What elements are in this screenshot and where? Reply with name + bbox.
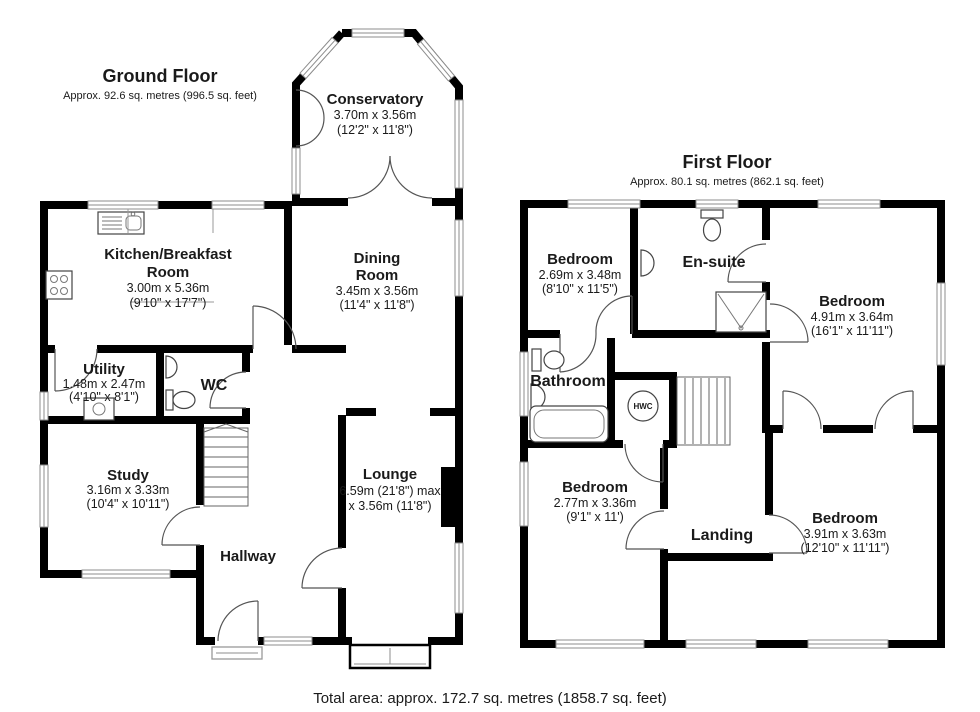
study-window-side: [40, 465, 48, 527]
kitchen-hob: [46, 271, 72, 299]
first-floor-fixtures: HWC: [530, 210, 766, 442]
floorplan-page: Ground Floor Approx. 92.6 sq. metres (99…: [0, 0, 980, 712]
bedroom-side-label: Bedroom 2.77m x 3.36m (9'1" x 11'): [554, 479, 637, 524]
conservatory-french-doors: [348, 156, 432, 198]
hwc-label: HWC: [633, 402, 652, 411]
room-name-2: Room: [356, 267, 399, 284]
room-dims-m: 3.16m x 3.33m: [87, 483, 170, 497]
room-name: Bedroom: [547, 251, 613, 268]
first-floor-area: Approx. 80.1 sq. metres (862.1 sq. feet): [630, 176, 824, 188]
wc-sink: [166, 356, 177, 378]
room-dims-l2: x 3.56m (11'8"): [348, 499, 431, 513]
first-floor-title: First Floor: [683, 152, 772, 172]
front-porch: [212, 647, 262, 659]
ground-floor-stairs: [204, 424, 248, 506]
study-window-front: [82, 570, 170, 578]
bedroom-front-door: [596, 296, 632, 334]
room-name-2: Room: [147, 264, 190, 281]
dining-label: Dining Room 3.45m x 3.56m (11'4" x 11'8"…: [336, 250, 419, 312]
bathroom-label: Bathroom: [530, 373, 606, 390]
hall-window: [264, 637, 312, 645]
room-dims-ft: (4'10" x 8'1"): [69, 390, 139, 404]
room-dims-ft: (12'2" x 11'8"): [337, 123, 413, 137]
front-door: [218, 601, 258, 641]
ensuite-shower: [716, 292, 766, 332]
dining-window: [455, 220, 463, 296]
room-dims-m: 3.00m x 5.36m: [127, 281, 210, 295]
lounge-bay-window: [350, 645, 430, 668]
wc-label: WC: [201, 377, 228, 394]
ground-floor-area: Approx. 92.6 sq. metres (996.5 sq. feet): [63, 90, 257, 102]
study-label: Study 3.16m x 3.33m (10'4" x 10'11"): [87, 467, 170, 511]
lounge-label: Lounge 6.59m (21'8") max x 3.56m (11'8"): [339, 466, 441, 513]
room-dims-ft: (9'1" x 11'): [566, 510, 624, 524]
conservatory-window-right-diag: [418, 39, 455, 81]
lounge-window-side: [455, 543, 463, 613]
hot-water-cylinder: HWC: [628, 391, 658, 421]
room-name: Bedroom: [562, 479, 628, 496]
first-floor-stairs: [677, 377, 730, 445]
kitchen-label: Kitchen/Breakfast Room 3.00m x 5.36m (9'…: [104, 246, 232, 310]
floorplan-canvas: Ground Floor Approx. 92.6 sq. metres (99…: [0, 0, 980, 712]
chimney-breast: [441, 467, 455, 527]
bathroom-door: [560, 334, 596, 372]
utility-window: [40, 392, 48, 420]
room-dims-m: 4.91m x 3.64m: [811, 310, 894, 324]
room-dims-ft: (8'10" x 11'5"): [542, 282, 618, 296]
room-dims-m: 3.45m x 3.56m: [336, 284, 419, 298]
bedroom-side-window-left: [520, 462, 528, 526]
room-name: Utility: [83, 361, 125, 378]
room-name: Lounge: [363, 466, 417, 483]
conservatory-window-top: [352, 29, 404, 37]
room-dims-m: 1.48m x 2.47m: [63, 377, 146, 391]
landing-label: Landing: [691, 527, 753, 544]
kitchen-sink: [98, 212, 144, 234]
room-dims-ft: (10'4" x 10'11"): [87, 497, 170, 511]
wardrobe-door-2: [875, 391, 913, 429]
bathroom-window: [520, 352, 528, 416]
room-dims-ft: (11'4" x 11'8"): [339, 298, 414, 312]
bedroom-main-door: [770, 304, 808, 342]
bedroom-main-window-top: [818, 200, 880, 208]
kitchen-window: [88, 201, 158, 209]
bedroom-front-window: [568, 200, 640, 208]
ensuite-sink: [641, 250, 654, 276]
bedroom-rear-window-2: [808, 640, 888, 648]
bedroom-side-door-top: [625, 444, 663, 482]
utility-label: Utility 1.48m x 2.47m (4'10" x 8'1"): [63, 361, 146, 404]
room-dims-ft: (9'10" x 17'7"): [130, 296, 207, 310]
bedroom-rear-window-1: [686, 640, 756, 648]
room-dims-m: 3.91m x 3.63m: [804, 527, 887, 541]
total-area-text: Total area: approx. 172.7 sq. metres (18…: [313, 690, 667, 707]
bedroom-main-label: Bedroom 4.91m x 3.64m (16'1" x 11'11"): [811, 293, 894, 338]
hallway-label: Hallway: [220, 548, 277, 565]
room-dims-m: 2.77m x 3.36m: [554, 496, 637, 510]
bedroom-rear-label: Bedroom 3.91m x 3.63m (12'10" x 11'11"): [801, 510, 890, 555]
ground-floor-plan: Ground Floor Approx. 92.6 sq. metres (99…: [40, 29, 463, 668]
bathtub: [530, 406, 608, 442]
room-dims-ft: (16'1" x 11'11"): [811, 324, 893, 338]
wc-toilet: [166, 390, 195, 410]
conservatory-window-right: [455, 100, 463, 188]
ensuite-label: En-suite: [682, 254, 745, 271]
room-name: Study: [107, 467, 149, 484]
room-name: Bedroom: [819, 293, 885, 310]
lounge-door: [302, 548, 342, 588]
room-dims-m: 3.70m x 3.56m: [334, 108, 417, 122]
room-dims-ft: (12'10" x 11'11"): [801, 541, 890, 555]
ensuite-toilet: [701, 210, 723, 241]
room-name: Bedroom: [812, 510, 878, 527]
conservatory-window-left-diag: [300, 37, 338, 78]
conservatory-window-left: [292, 148, 300, 194]
bathroom-toilet: [532, 349, 564, 371]
conservatory-side-door: [296, 90, 324, 146]
kitchen-window-2: [212, 201, 264, 209]
room-name: Kitchen/Breakfast: [104, 246, 232, 263]
conservatory-label: Conservatory 3.70m x 3.56m (12'2" x 11'8…: [327, 91, 424, 137]
room-dims-m: 2.69m x 3.48m: [539, 268, 622, 282]
ensuite-window: [696, 200, 738, 208]
wardrobe-door-1: [783, 391, 821, 429]
room-name: Conservatory: [327, 91, 424, 108]
bedroom-front-label: Bedroom 2.69m x 3.48m (8'10" x 11'5"): [539, 251, 622, 296]
room-dims-l1: 6.59m (21'8") max: [339, 484, 441, 498]
first-floor-plan: First Floor Approx. 80.1 sq. metres (862…: [520, 152, 945, 648]
bedroom-side-door: [626, 511, 664, 549]
bedroom-side-window-bottom: [556, 640, 644, 648]
study-door: [162, 507, 200, 545]
room-name: Dining: [354, 250, 401, 267]
bedroom-main-window-side: [937, 283, 945, 365]
ground-floor-title: Ground Floor: [103, 66, 218, 86]
